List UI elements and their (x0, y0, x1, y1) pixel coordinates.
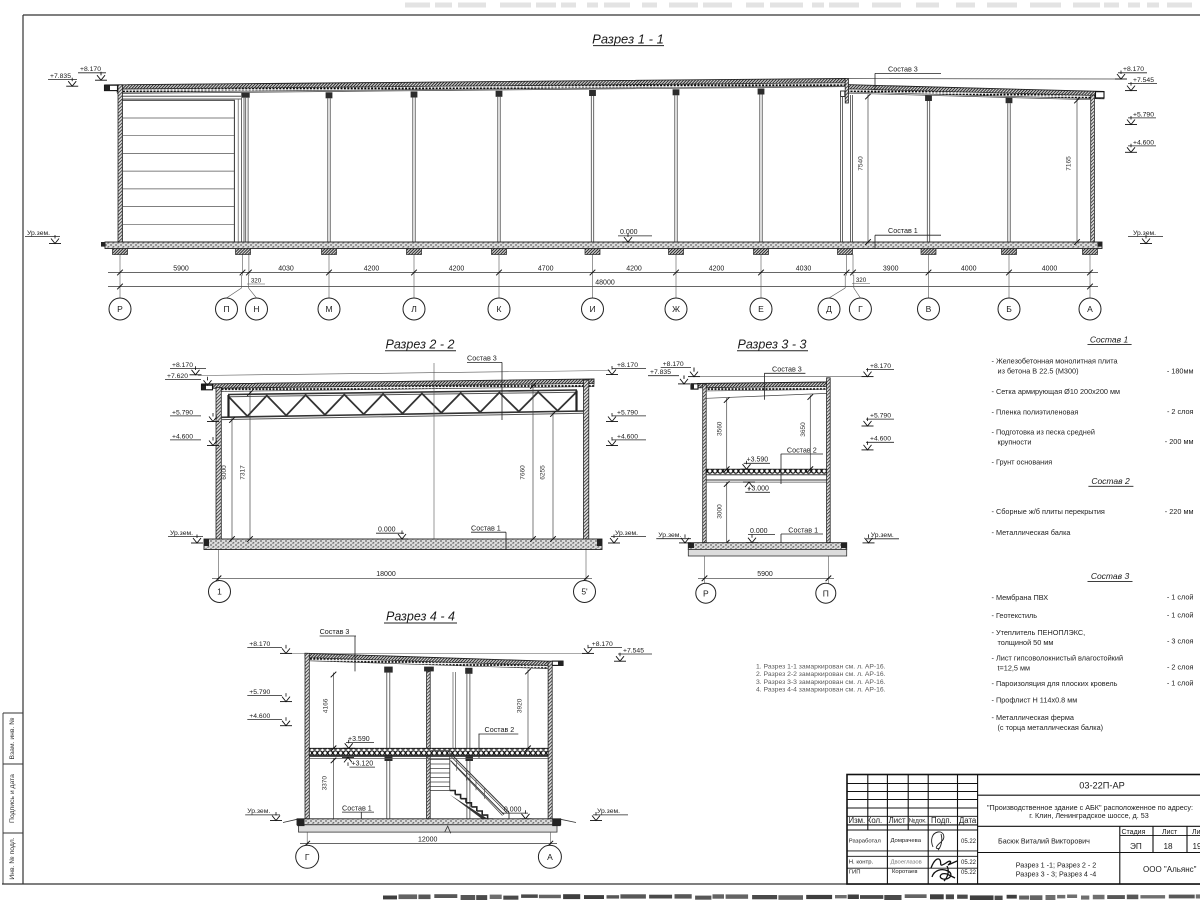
svg-text:+8.170: +8.170 (592, 641, 613, 648)
svg-text:Ж: Ж (672, 304, 680, 314)
svg-text:Изм.: Изм. (849, 816, 866, 825)
svg-text:- 2 слоя: - 2 слоя (1167, 407, 1194, 416)
svg-text:Домрачева: Домрачева (891, 838, 922, 844)
svg-text:ЭП: ЭП (1130, 842, 1142, 851)
svg-text:4. Разрез 4-4 замаркирован см.: 4. Разрез 4-4 замаркирован см. л. АР-16. (756, 687, 886, 694)
svg-text:- Железобетонная монолитная п: - Железобетонная монолитная плита (992, 356, 1119, 365)
svg-text:3920: 3920 (517, 698, 524, 713)
svg-text:- Утеплитель ПЕНОПЛЭКС,: - Утеплитель ПЕНОПЛЭКС, (992, 628, 1086, 637)
svg-text:№док.: №док. (909, 818, 927, 825)
svg-text:Разрез 1 - 1: Разрез 1 - 1 (592, 32, 664, 47)
svg-text:5900: 5900 (757, 571, 773, 578)
svg-text:05.22: 05.22 (961, 839, 977, 845)
svg-text:19: 19 (1193, 842, 1200, 851)
svg-text:Ур.зем.: Ур.зем. (871, 532, 894, 539)
svg-text:ГИП: ГИП (849, 869, 861, 875)
svg-text:Состав 1: Состав 1 (788, 525, 818, 534)
svg-text:+5.790: +5.790 (172, 409, 193, 416)
svg-text:Ур.зем.: Ур.зем. (247, 808, 270, 815)
svg-text:Разрез 2 - 2: Разрез 2 - 2 (386, 338, 455, 352)
svg-text:3. Разрез 3-3 замаркирован см.: 3. Разрез 3-3 замаркирован см. л. АР-16. (756, 679, 886, 686)
svg-text:М: М (325, 304, 332, 314)
svg-text:П: П (823, 588, 829, 598)
svg-text:+8.170: +8.170 (249, 641, 270, 648)
svg-text:0.000: 0.000 (750, 528, 768, 535)
svg-text:- Пленка полиэтиленовая: - Пленка полиэтиленовая (992, 408, 1079, 417)
svg-text:Подп.: Подп. (931, 816, 952, 825)
svg-text:(с торца металлическая балка): (с торца металлическая балка) (998, 723, 1104, 732)
svg-text:+3.000: +3.000 (747, 486, 769, 493)
svg-text:Состав 3: Состав 3 (467, 354, 497, 363)
svg-text:+5.790: +5.790 (1133, 111, 1154, 118)
svg-text:18: 18 (1164, 842, 1174, 851)
svg-text:+5.790: +5.790 (870, 413, 891, 420)
svg-text:+4.600: +4.600 (249, 713, 270, 720)
svg-text:+4.600: +4.600 (617, 433, 638, 440)
svg-text:Н. контр.: Н. контр. (849, 860, 874, 866)
svg-text:3000: 3000 (717, 504, 724, 519)
svg-text:0.000: 0.000 (620, 229, 638, 236)
svg-text:4200: 4200 (709, 265, 725, 272)
svg-text:- 2 слоя: - 2 слоя (1167, 663, 1194, 672)
svg-text:+8.170: +8.170 (663, 361, 684, 368)
svg-text:Кол.: Кол. (867, 816, 882, 825)
svg-text:- Лист гипсоволокнистый влагос: - Лист гипсоволокнистый влагостойкий (992, 653, 1124, 662)
svg-text:1. Разрез 1-1 замаркирован см.: 1. Разрез 1-1 замаркирован см. л. АР-16. (756, 663, 886, 670)
svg-text:Разрез 1 -1; Разрез 2 - 2: Разрез 1 -1; Разрез 2 - 2 (1016, 860, 1097, 869)
svg-text:+5.790: +5.790 (249, 689, 270, 696)
svg-text:- Металлическая балка: - Металлическая балка (992, 528, 1072, 537)
svg-text:12000: 12000 (418, 837, 438, 844)
svg-text:+3.120: +3.120 (352, 760, 374, 767)
svg-text:Разрез 3 - 3; Разрез 4 -4: Разрез 3 - 3; Разрез 4 -4 (1016, 869, 1097, 878)
svg-text:Состав 2: Состав 2 (1091, 476, 1130, 486)
svg-text:Басюк Виталий Викторович: Басюк Виталий Викторович (998, 837, 1090, 846)
svg-text:Ур.зем.: Ур.зем. (597, 808, 620, 815)
svg-text:К: К (497, 304, 502, 314)
svg-text:4000: 4000 (961, 265, 977, 272)
svg-text:5900: 5900 (173, 265, 189, 272)
svg-text:Состав 3: Состав 3 (320, 627, 350, 636)
svg-text:4000: 4000 (1042, 265, 1058, 272)
svg-text:И: И (589, 304, 595, 314)
svg-text:0.000: 0.000 (504, 806, 522, 813)
svg-text:Двоеглазов: Двоеглазов (891, 859, 922, 865)
svg-text:- Грунт основания: - Грунт основания (992, 458, 1053, 467)
svg-text:Ур.зем.: Ур.зем. (170, 530, 193, 537)
svg-text:6000: 6000 (221, 465, 228, 480)
svg-text:4166: 4166 (323, 698, 330, 713)
svg-text:- Подготовка из песка средней: - Подготовка из песка средней (992, 427, 1095, 436)
svg-text:7317: 7317 (240, 465, 247, 480)
svg-text:+7.620: +7.620 (167, 373, 188, 380)
svg-text:- Профлист Н 114х0.8 мм: - Профлист Н 114х0.8 мм (992, 696, 1078, 705)
svg-text:- 180мм: - 180мм (1167, 367, 1194, 376)
svg-text:6255: 6255 (540, 465, 547, 480)
svg-text:В: В (926, 304, 932, 314)
svg-text:+7.545: +7.545 (623, 647, 644, 654)
svg-text:Д: Д (826, 304, 832, 314)
svg-text:Состав 1: Состав 1 (471, 524, 501, 533)
svg-text:+8.170: +8.170 (80, 66, 101, 73)
svg-text:- Геотекстиль: - Геотекстиль (992, 611, 1038, 620)
svg-text:Г: Г (305, 852, 310, 862)
svg-text:Ур.зем.: Ур.зем. (27, 230, 50, 237)
svg-text:18000: 18000 (376, 571, 396, 578)
svg-text:- Сборные ж/б плиты перекрытия: - Сборные ж/б плиты перекрытия (992, 507, 1105, 516)
svg-text:ООО "Альянс": ООО "Альянс" (1143, 865, 1197, 874)
svg-text:- 1 слой: - 1 слой (1167, 611, 1194, 620)
svg-text:- 1 слой: - 1 слой (1167, 679, 1194, 688)
svg-text:4200: 4200 (364, 265, 380, 272)
svg-text:Коротаев: Коротаев (892, 869, 917, 875)
svg-text:- Металлическая ферма: - Металлическая ферма (992, 713, 1075, 722)
svg-text:- Пароизоляция для плоских кро: - Пароизоляция для плоских кровель (992, 679, 1118, 688)
svg-text:03-22П-АР: 03-22П-АР (1079, 781, 1124, 791)
svg-text:3560: 3560 (717, 421, 724, 436)
svg-text:+3.590: +3.590 (348, 736, 370, 743)
svg-text:Состав 1: Состав 1 (342, 803, 372, 812)
svg-text:- 200 мм: - 200 мм (1165, 437, 1194, 446)
svg-text:+3.590: +3.590 (747, 457, 769, 464)
svg-text:+5.790: +5.790 (617, 409, 638, 416)
svg-text:5': 5' (581, 587, 588, 597)
svg-text:Состав 2: Состав 2 (787, 445, 817, 454)
svg-text:Л: Л (411, 304, 417, 314)
svg-text:Состав 1: Состав 1 (1090, 335, 1129, 345)
svg-text:3370: 3370 (322, 776, 329, 791)
svg-text:- 220 мм: - 220 мм (1165, 507, 1194, 516)
svg-text:4030: 4030 (278, 265, 294, 272)
svg-text:Р: Р (117, 304, 123, 314)
svg-text:Ур.зем.: Ур.зем. (615, 530, 638, 537)
svg-text:+4.600: +4.600 (172, 433, 193, 440)
svg-text:05.22: 05.22 (961, 860, 977, 866)
svg-text:7660: 7660 (520, 465, 527, 480)
svg-text:Лист: Лист (1192, 829, 1200, 836)
svg-text:+4.600: +4.600 (870, 436, 891, 443)
svg-text:+7.835: +7.835 (650, 369, 671, 376)
svg-text:7165: 7165 (1066, 156, 1073, 171)
svg-text:3650: 3650 (800, 422, 807, 437)
svg-text:Ур.зем.: Ур.зем. (658, 532, 681, 539)
svg-text:48000: 48000 (595, 280, 615, 287)
svg-text:Разрез 4 - 4: Разрез 4 - 4 (386, 610, 455, 624)
svg-text:Лист: Лист (889, 816, 906, 825)
svg-text:t=12,5 мм: t=12,5 мм (998, 664, 1031, 673)
svg-text:- 1 слой: - 1 слой (1167, 593, 1194, 602)
svg-text:толщиной 50 мм: толщиной 50 мм (998, 638, 1054, 647)
svg-text:Дата: Дата (959, 816, 977, 825)
svg-text:+8.170: +8.170 (1123, 66, 1144, 73)
svg-text:+4.600: +4.600 (1133, 139, 1154, 146)
svg-text:Разработал: Разработал (849, 838, 882, 844)
svg-text:2. Разрез 2-2 замаркирован см.: 2. Разрез 2-2 замаркирован см. л. АР-16. (756, 671, 886, 678)
svg-text:Е: Е (758, 304, 764, 314)
svg-text:05.22: 05.22 (961, 870, 977, 876)
svg-text:Стадия: Стадия (1122, 829, 1146, 836)
svg-text:+8.170: +8.170 (617, 362, 638, 369)
svg-text:320: 320 (251, 278, 262, 285)
svg-text:+7.545: +7.545 (1133, 77, 1154, 84)
svg-text:Взам. инв. №: Взам. инв. № (9, 717, 16, 759)
svg-text:+8.170: +8.170 (172, 362, 193, 369)
svg-text:3900: 3900 (883, 265, 899, 272)
svg-text:Состав 3: Состав 3 (772, 365, 802, 374)
svg-text:320: 320 (856, 277, 867, 284)
svg-text:Ур.зем.: Ур.зем. (1133, 230, 1156, 237)
svg-text:г. Клин, Ленинградское шоссе,: г. Клин, Ленинградское шоссе, д. 53 (1029, 811, 1149, 820)
svg-text:1: 1 (217, 587, 222, 597)
svg-text:- 3 слоя: - 3 слоя (1167, 636, 1194, 645)
svg-text:Разрез 3 - 3: Разрез 3 - 3 (738, 338, 807, 352)
svg-text:0.000: 0.000 (378, 527, 396, 534)
svg-text:Б: Б (1006, 304, 1012, 314)
svg-text:из бетона В 22.5 (М300): из бетона В 22.5 (М300) (998, 367, 1079, 376)
svg-text:Состав 3: Состав 3 (888, 65, 918, 74)
svg-text:4200: 4200 (449, 265, 465, 272)
svg-text:+8.170: +8.170 (870, 363, 891, 370)
svg-text:П: П (223, 304, 229, 314)
svg-text:Подпись и дата: Подпись и дата (9, 774, 16, 823)
svg-text:крупности: крупности (998, 438, 1032, 447)
svg-text:- Сетка армирующая Ø10 200х200: - Сетка армирующая Ø10 200х200 мм (992, 387, 1121, 396)
svg-text:4200: 4200 (626, 265, 642, 272)
svg-text:Р: Р (703, 588, 709, 598)
svg-text:4030: 4030 (796, 265, 812, 272)
svg-text:Инв. № подл.: Инв. № подл. (9, 837, 16, 879)
svg-text:Н: Н (253, 304, 259, 314)
svg-text:4700: 4700 (538, 265, 554, 272)
svg-text:А: А (547, 852, 553, 862)
svg-text:Состав 2: Состав 2 (485, 725, 515, 734)
svg-text:Состав 1: Состав 1 (888, 226, 918, 235)
svg-text:+7.835: +7.835 (50, 73, 71, 80)
svg-text:Состав 3: Состав 3 (1091, 571, 1130, 581)
svg-text:А: А (1087, 304, 1093, 314)
svg-text:Г: Г (858, 304, 863, 314)
svg-text:Лист: Лист (1162, 829, 1178, 836)
svg-text:7540: 7540 (858, 156, 865, 171)
svg-text:- Мембрана ПВХ: - Мембрана ПВХ (992, 593, 1049, 602)
